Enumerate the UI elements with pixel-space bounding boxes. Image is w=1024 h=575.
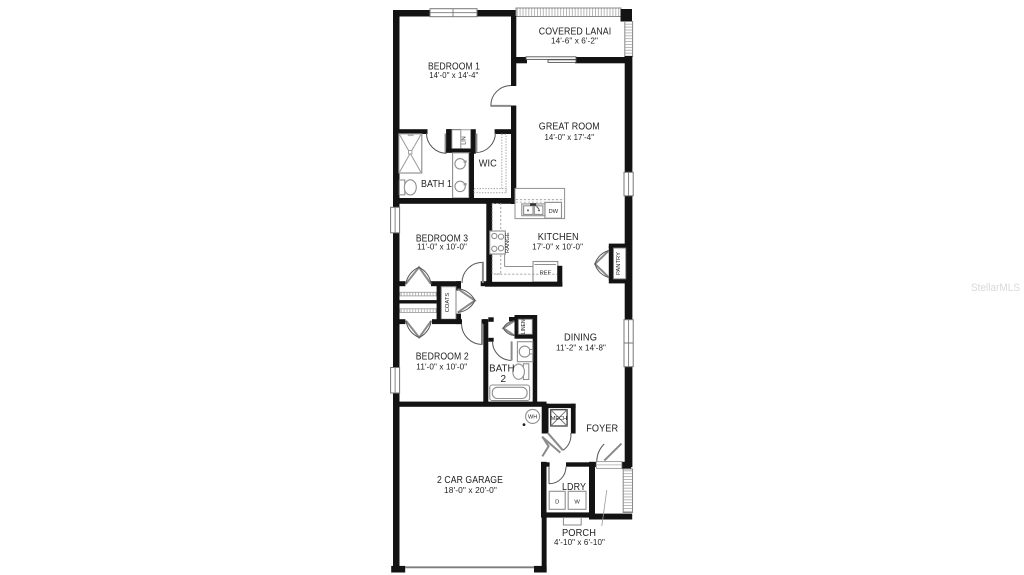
svg-text:WIC: WIC (479, 158, 497, 169)
svg-text:14'-6" x 6'-2": 14'-6" x 6'-2" (551, 36, 598, 46)
svg-text:11'-0" x 10'-0": 11'-0" x 10'-0" (417, 242, 467, 252)
svg-text:W: W (574, 499, 580, 505)
svg-text:DW: DW (548, 209, 558, 215)
svg-text:LIN: LIN (461, 136, 467, 145)
svg-text:11'-2" x 14'-8": 11'-2" x 14'-8" (556, 342, 606, 352)
svg-text:FOYER: FOYER (586, 424, 618, 435)
svg-text:14'-0" x 17'-4": 14'-0" x 17'-4" (544, 132, 594, 142)
svg-text:2: 2 (500, 374, 506, 385)
svg-text:18'-0" x 20'-0": 18'-0" x 20'-0" (444, 485, 497, 495)
svg-text:PANTRY: PANTRY (616, 252, 622, 275)
svg-text:RANGE: RANGE (505, 232, 511, 253)
svg-text:StellarMLS: StellarMLS (971, 282, 1020, 294)
svg-text:BATH 1: BATH 1 (421, 179, 452, 190)
svg-text:COATS: COATS (445, 293, 451, 313)
svg-text:D: D (555, 499, 559, 505)
svg-text:REF: REF (540, 271, 552, 277)
svg-text:4'-10" x 6'-10": 4'-10" x 6'-10" (554, 537, 605, 547)
svg-text:2 CAR GARAGE: 2 CAR GARAGE (437, 475, 503, 486)
svg-text:14'-0" x 14'-4": 14'-0" x 14'-4" (429, 70, 478, 80)
svg-text:WH: WH (528, 414, 537, 420)
svg-text:MECH: MECH (551, 416, 567, 422)
svg-text:LINEN: LINEN (521, 319, 527, 334)
svg-text:11'-0" x 10'-0": 11'-0" x 10'-0" (416, 361, 467, 371)
svg-text:17'-0" x 10'-0": 17'-0" x 10'-0" (532, 241, 583, 251)
